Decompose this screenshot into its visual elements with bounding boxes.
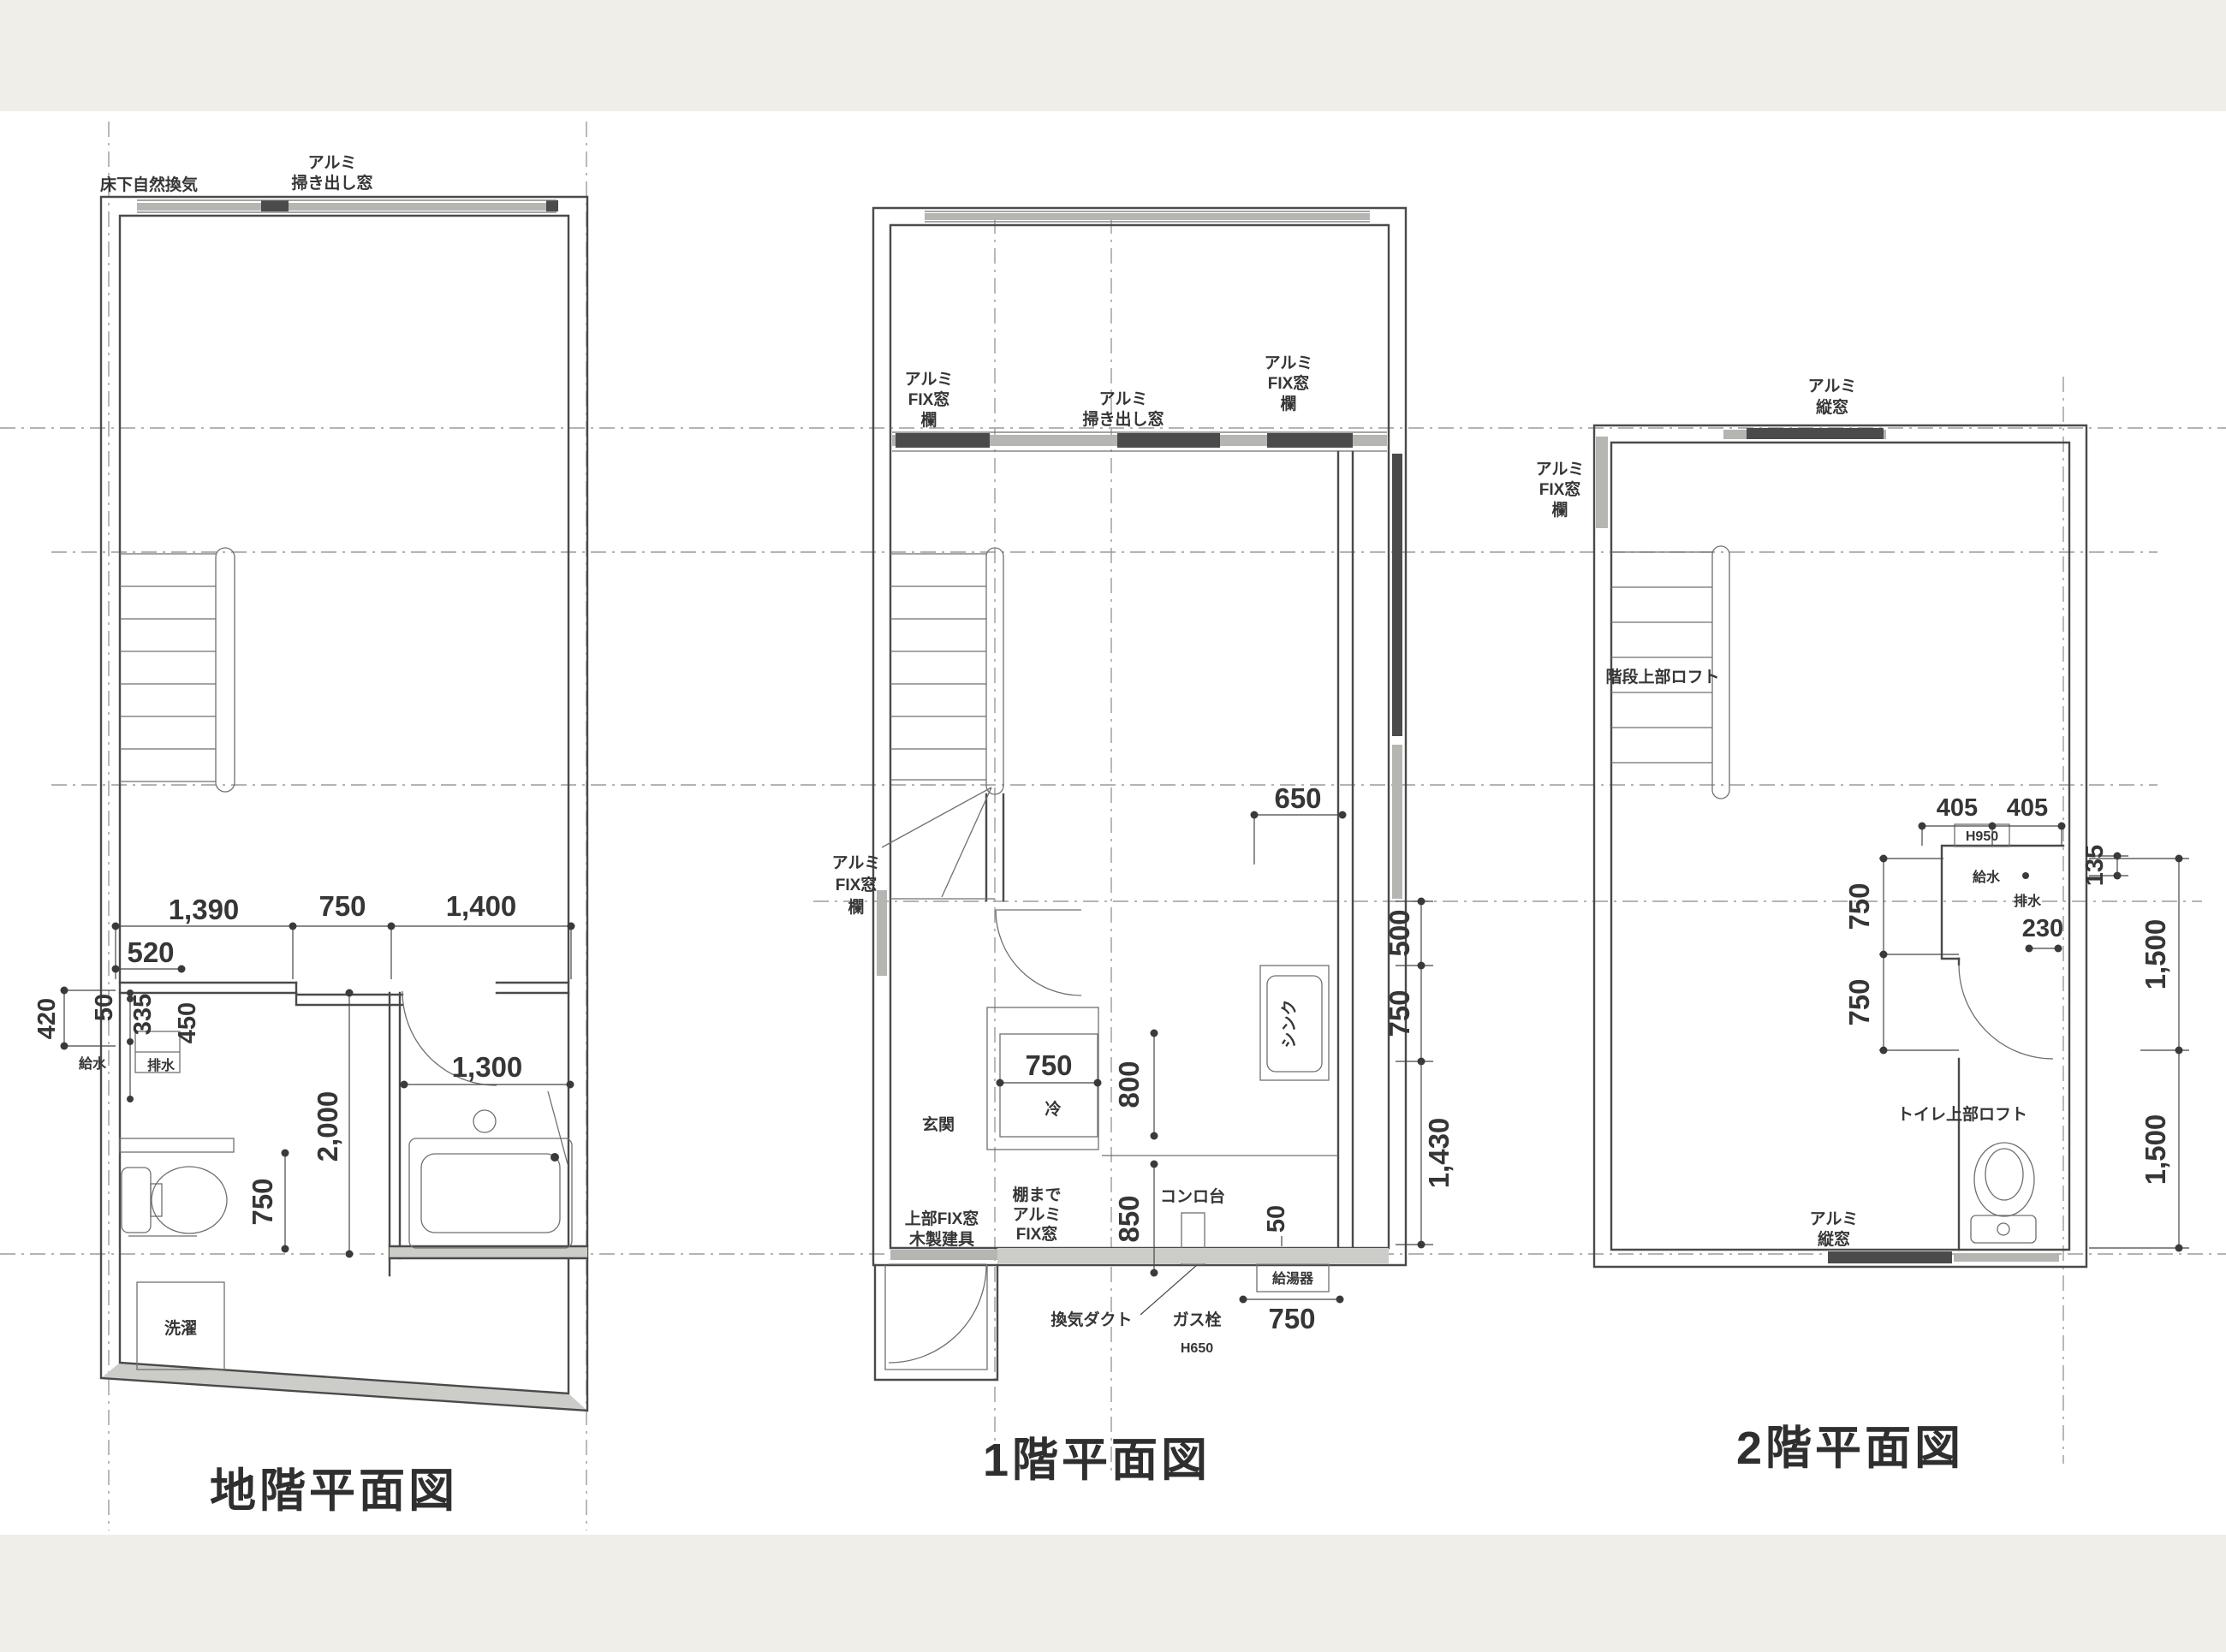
dim-405-a: 405: [1937, 794, 1978, 822]
floor-plan-drawing: 洗濯 床下自然換気 アルミ 掃き出し窓 1,390 750 1,400 520 …: [0, 0, 2226, 1652]
dim-135: 135: [2081, 845, 2109, 886]
dim-450: 450: [174, 1002, 201, 1043]
dim-650: 650: [1274, 782, 1321, 814]
f2-bottom-window-label-1: アルミ: [1810, 1210, 1859, 1228]
floor1-right-window: [1392, 454, 1402, 736]
dim-1500-a: 1,500: [2140, 919, 2171, 990]
stove-label: コンロ台: [1160, 1186, 1225, 1206]
f1-win-stair-3: 欄: [848, 897, 864, 917]
laundry-label: 洗濯: [164, 1318, 197, 1338]
dim-1400: 1,400: [446, 890, 517, 922]
to-shelf-fix-label: FIX窓: [1016, 1224, 1058, 1244]
dim-2000: 2,000: [312, 1091, 343, 1162]
f1-win-mid-1: アルミ: [1099, 390, 1148, 408]
f1-win-stair-1: アルミ: [832, 854, 881, 872]
f2-left-window-label-1: アルミ: [1536, 461, 1585, 478]
floor1-bottom-wall-band: [997, 1248, 1389, 1263]
dim-1430: 1,430: [1423, 1118, 1455, 1189]
dim-750-f2b: 750: [1843, 978, 1875, 1025]
floor2-title: 2階平面図: [1736, 1423, 1964, 1474]
f1-win-right-3: 欄: [1280, 394, 1296, 413]
f2-top-window-label-1: アルミ: [1808, 377, 1857, 395]
f2-left-window-label-2: FIX窓: [1539, 479, 1581, 499]
f1-win-right-1: アルミ: [1265, 354, 1313, 372]
water-heater-label: 給湯器: [1272, 1270, 1314, 1287]
dim-50-f1: 50: [1263, 1205, 1290, 1233]
f2-top-window-label-2: 縦窓: [1816, 397, 1848, 417]
f1-win-left-3: 欄: [920, 410, 937, 430]
dim-750-a: 750: [318, 890, 366, 922]
basement-kyusui-label: 給水: [79, 1055, 107, 1072]
h950-label: H950: [1966, 829, 1998, 844]
basement-window-label-1: アルミ: [308, 154, 357, 172]
dim-800: 800: [1113, 1061, 1145, 1108]
f2-left-window-label-3: 欄: [1551, 500, 1568, 520]
dim-750-right: 750: [1384, 989, 1415, 1037]
basement-title: 地階平面図: [210, 1465, 458, 1517]
dim-750-f2a: 750: [1843, 882, 1875, 930]
f2-bottom-window-label-2: 縦窓: [1818, 1229, 1850, 1249]
f1-win-left-1: アルミ: [905, 371, 954, 389]
entrance-label: 玄関: [922, 1114, 955, 1134]
dim-405-b: 405: [2007, 794, 2048, 822]
dim-1390: 1,390: [169, 894, 240, 925]
dim-750-fridge: 750: [1025, 1049, 1072, 1081]
toilet-loft-label: トイレ上部ロフト: [1897, 1104, 2027, 1124]
dim-750-toilet: 750: [247, 1178, 278, 1225]
floor1-right-window-2: [1392, 745, 1402, 899]
f1-win-right-2: FIX窓: [1268, 373, 1310, 393]
floor2-top-window: [1723, 428, 1886, 439]
vent-duct-label: 換気ダクト: [1051, 1310, 1132, 1329]
to-shelf-label: 棚まで: [1012, 1185, 1061, 1204]
dim-850: 850: [1113, 1195, 1145, 1242]
stair-loft-label: 階段上部ロフト: [1605, 667, 1719, 686]
floor1-title: 1階平面図: [983, 1435, 1211, 1486]
floor1-left-window: [877, 890, 887, 976]
upper-fix-window-label: 上部FIX窓: [905, 1209, 979, 1228]
gas-valve-label: ガス栓: [1172, 1310, 1221, 1329]
f1-win-mid-2: 掃き出し窓: [1082, 409, 1164, 429]
dim-1300: 1,300: [452, 1051, 523, 1083]
basement-window-label-2: 掃き出し窓: [291, 173, 372, 193]
f1-win-left-2: FIX窓: [908, 389, 950, 409]
dim-500: 500: [1384, 909, 1415, 956]
fridge-label: 冷: [1045, 1099, 1061, 1119]
to-shelf-alumi-label: アルミ: [1013, 1206, 1062, 1224]
underfloor-vent-label: 床下自然換気: [100, 175, 198, 194]
f2-kyusui-label: 給水: [1973, 869, 2001, 885]
dim-1500-b: 1,500: [2140, 1114, 2171, 1186]
wooden-fitting-label: 木製建具: [908, 1229, 974, 1249]
f1-win-stair-2: FIX窓: [836, 875, 878, 894]
gas-valve-height: H650: [1181, 1341, 1213, 1356]
basement-haisui-label: 排水: [147, 1057, 176, 1073]
dim-335: 335: [129, 994, 157, 1035]
dim-750-heater: 750: [1268, 1303, 1315, 1334]
f2-haisui-label: 排水: [2014, 893, 2042, 909]
dim-520: 520: [127, 936, 174, 968]
dim-230: 230: [2022, 915, 2063, 942]
floor2-left-window: [1596, 437, 1608, 528]
dim-420: 420: [33, 998, 61, 1039]
floor-plan-sheet: 洗濯 床下自然換気 アルミ 掃き出し窓 1,390 750 1,400 520 …: [0, 0, 2226, 1652]
floor2-bottom-window: [1828, 1251, 2059, 1263]
dim-50: 50: [91, 994, 118, 1021]
sink-label: シンク: [1280, 999, 1299, 1048]
